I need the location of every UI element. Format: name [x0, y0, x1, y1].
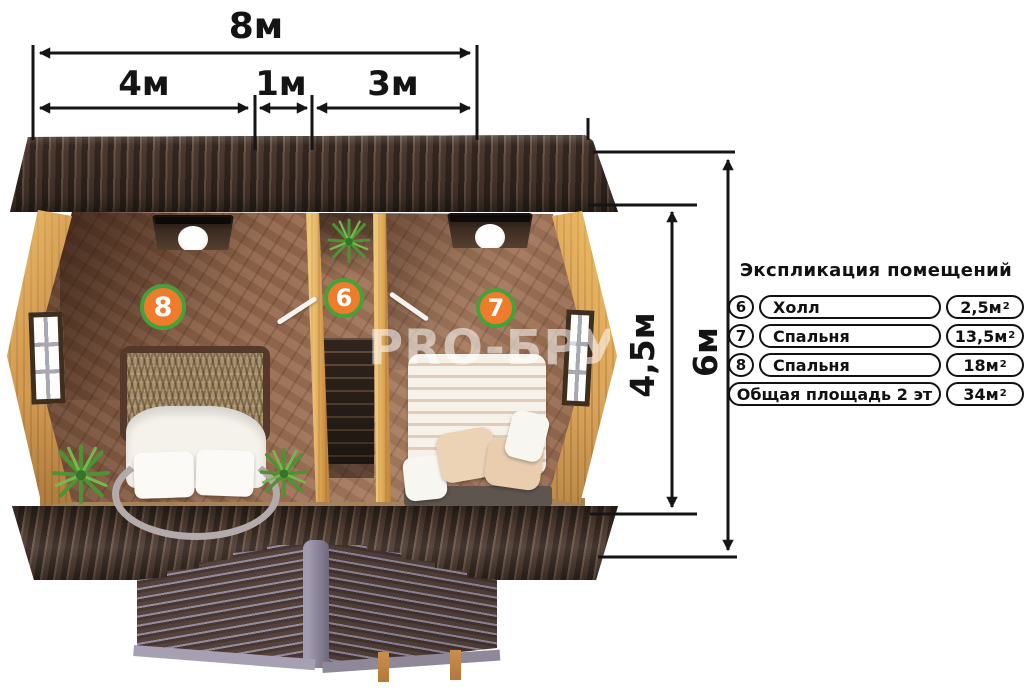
legend-room-number: 7 [728, 324, 754, 348]
dim-label-45m: 4,5м [623, 295, 663, 415]
legend-table: Экспликация помещений 6 Холл 2,5м2 7 Спа… [728, 248, 1024, 406]
legend-row: 6 Холл 2,5м2 [728, 295, 1024, 319]
legend-room-number: 6 [728, 295, 754, 319]
legend-row-total: Общая площадь 2 эт 34м2 [728, 382, 1024, 406]
legend-title: Экспликация помещений [728, 260, 1024, 281]
dim-label-3m: 3м [343, 64, 443, 104]
legend-total-area: 34м2 [946, 382, 1024, 406]
legend-room-number: 8 [728, 353, 754, 377]
dim-label-6m: 6м [686, 292, 726, 412]
legend-room-name: Холл [759, 295, 941, 319]
legend-room-name: Спальня [759, 353, 941, 377]
floor-plan-canvas: 8м 4м 1м 3м 4,5м 6м [0, 0, 1024, 689]
legend-row: 8 Спальня 18м2 [728, 353, 1024, 377]
legend-rows: 6 Холл 2,5м2 7 Спальня 13,5м2 8 Спальня … [728, 295, 1024, 406]
legend-room-area: 13,5м2 [946, 324, 1024, 348]
dim-label-4m: 4м [94, 64, 194, 104]
dim-label-8m: 8м [206, 6, 306, 47]
legend-row: 7 Спальня 13,5м2 [728, 324, 1024, 348]
legend-room-area: 18м2 [946, 353, 1024, 377]
legend-room-name: Спальня [759, 324, 941, 348]
dim-label-1m: 1м [231, 64, 331, 104]
legend-room-area: 2,5м2 [946, 295, 1024, 319]
legend-total-label: Общая площадь 2 эт [728, 382, 941, 406]
